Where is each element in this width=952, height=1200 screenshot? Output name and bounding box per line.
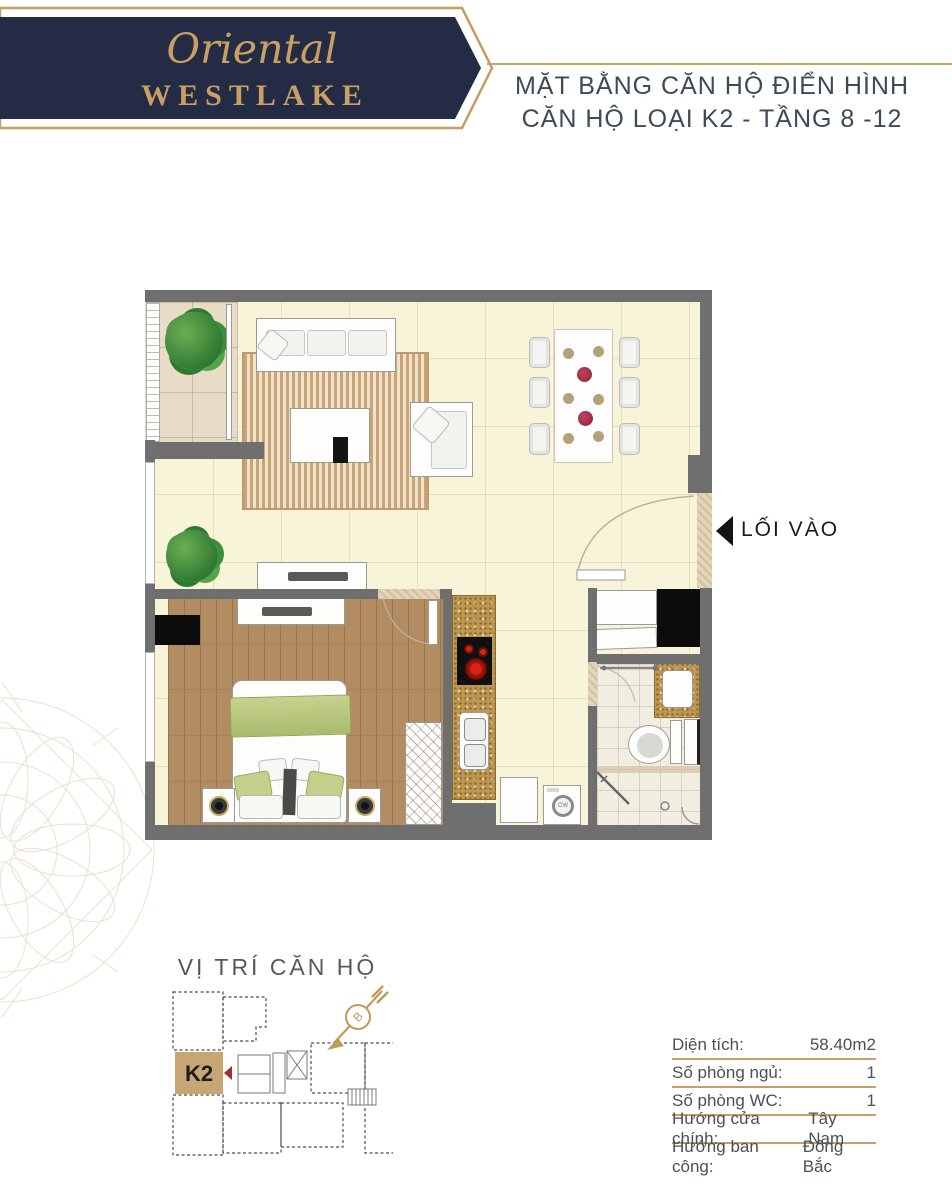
location-title: VỊ TRÍ CĂN HỘ <box>160 954 395 981</box>
unit-details-table: Diện tích: 58.40m2 Số phòng ngủ: 1 Số ph… <box>672 1032 876 1170</box>
bathroom-door-arc <box>597 666 635 702</box>
entry-door-arc <box>577 496 694 575</box>
shower-squeegee <box>597 772 629 804</box>
brand-name-text: WESTLAKE <box>141 79 369 112</box>
row-value: 58.40m2 <box>810 1035 876 1055</box>
brand-banner: Oriental WESTLAKE <box>0 0 505 135</box>
entry-door-leaf <box>577 570 625 580</box>
brochure-page: Oriental WESTLAKE MẶT BẰNG CĂN HỘ ĐIỂN H… <box>0 0 952 1200</box>
table-row: Số phòng ngủ: 1 <box>672 1060 876 1088</box>
row-value: 1 <box>867 1063 876 1083</box>
entrance-label: LỐI VÀO <box>741 518 839 542</box>
table-row: Hướng ban công: Đông Bắc <box>672 1144 876 1170</box>
location-miniplan: K2 B <box>133 985 393 1175</box>
compass-icon: B <box>327 986 388 1050</box>
banner-extension-line <box>487 63 952 65</box>
row-value: Đông Bắc <box>803 1137 876 1177</box>
page-title-line2: CĂN HỘ LOẠI K2 - TẦNG 8 -12 <box>472 103 952 136</box>
miniplan-core <box>238 1051 376 1105</box>
plan-overlay <box>145 290 712 840</box>
row-label: Số phòng ngủ: <box>672 1063 783 1083</box>
page-title: MẶT BẰNG CĂN HỘ ĐIỂN HÌNH CĂN HỘ LOẠI K2… <box>472 70 952 136</box>
unit-marker-icon <box>224 1066 232 1080</box>
floorplan: CW <box>145 290 712 840</box>
row-value: 1 <box>867 1091 876 1111</box>
towel-bar-bracket <box>602 666 607 671</box>
table-row: Diện tích: 58.40m2 <box>672 1032 876 1060</box>
towel-bar-bracket <box>653 666 658 671</box>
unit-k2-label: K2 <box>185 1061 213 1086</box>
shower-corner <box>682 807 699 824</box>
row-label: Diện tích: <box>672 1035 744 1055</box>
brand-script-text: Oriental <box>166 25 337 73</box>
floor-drain <box>661 802 669 810</box>
row-label: Hướng ban công: <box>672 1137 803 1177</box>
entrance-arrow-icon <box>716 516 733 546</box>
page-title-line1: MẶT BẰNG CĂN HỘ ĐIỂN HÌNH <box>472 70 952 103</box>
row-label: Số phòng WC: <box>672 1091 783 1111</box>
bedroom-door-arc <box>383 598 429 644</box>
